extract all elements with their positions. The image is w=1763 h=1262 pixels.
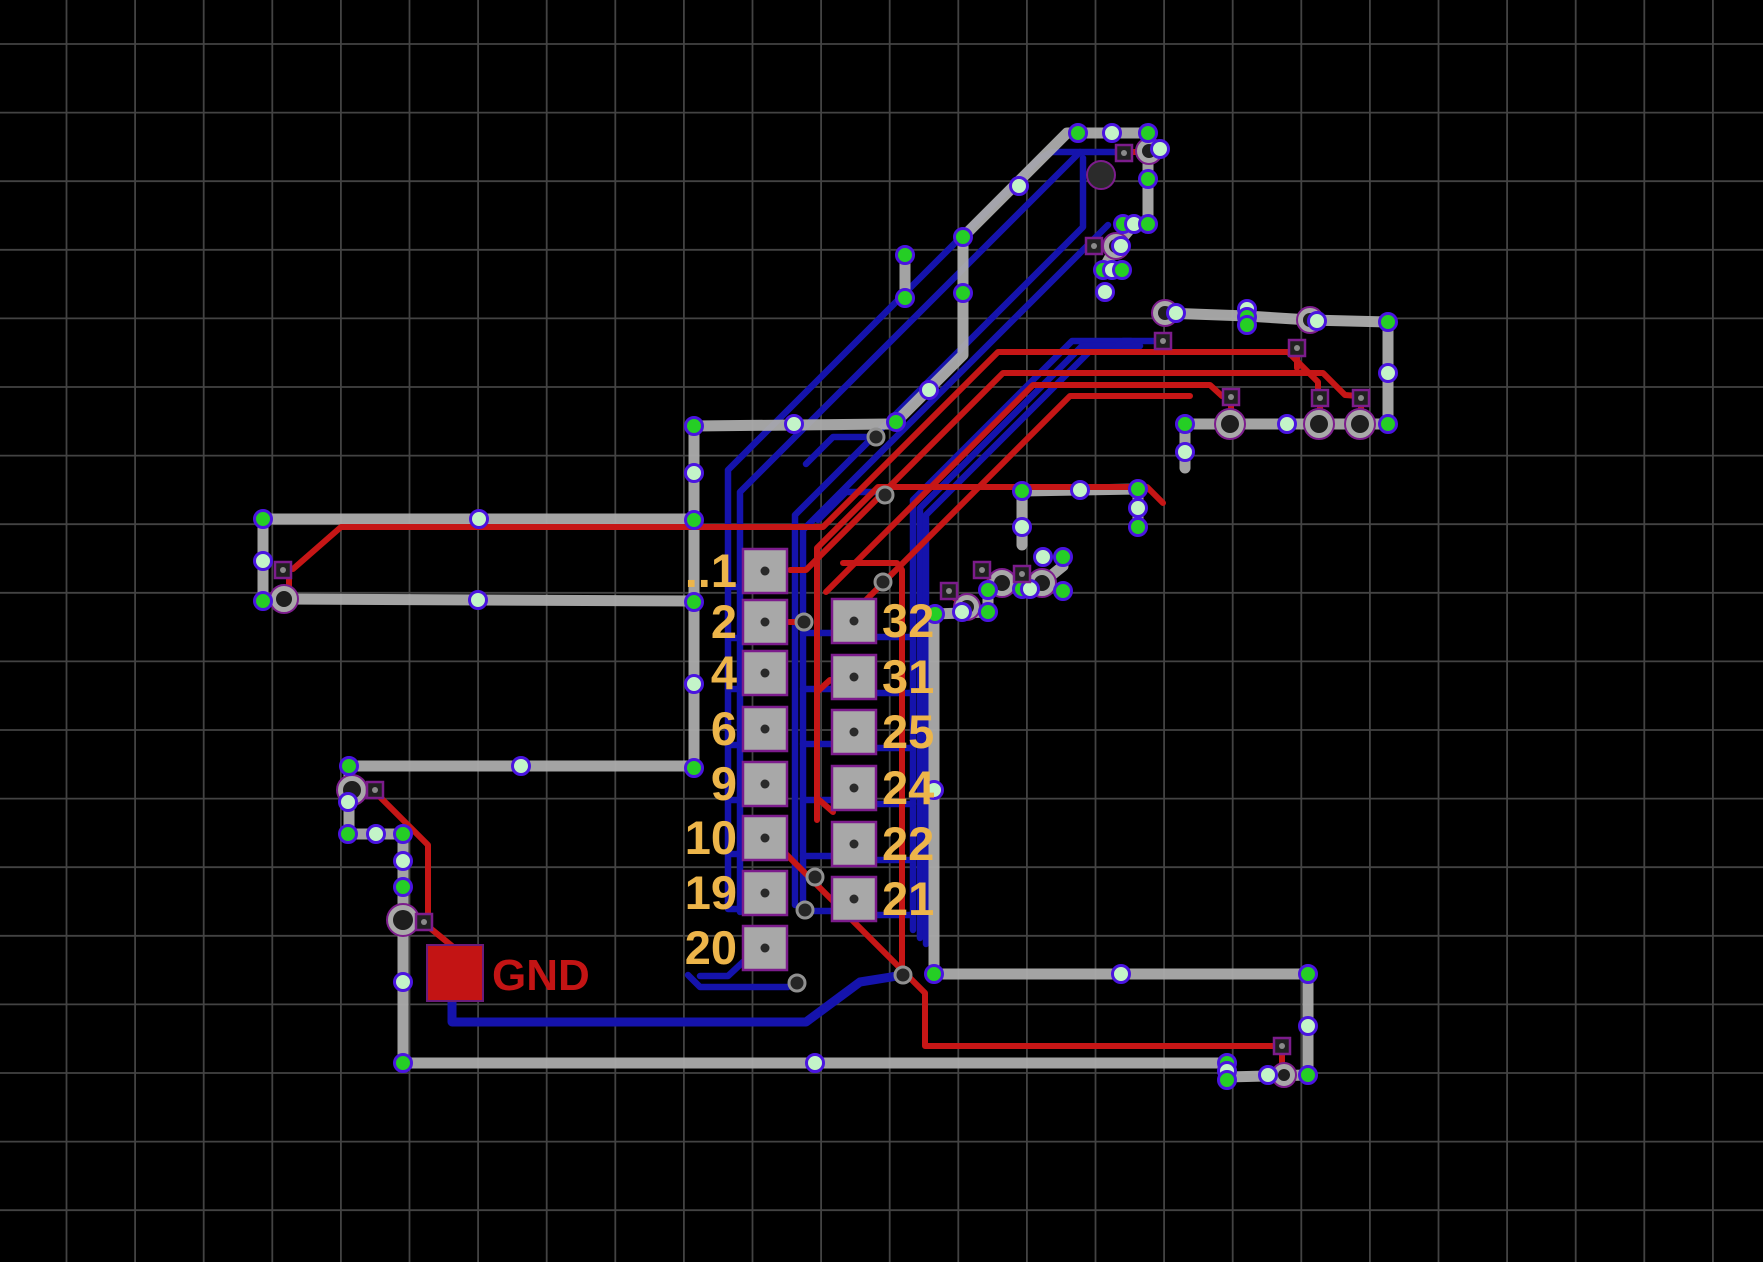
via-green[interactable] — [1140, 216, 1157, 233]
via-green[interactable] — [1219, 1072, 1236, 1089]
plated-hole-center — [1221, 415, 1239, 433]
small-pad-dot — [1358, 395, 1364, 401]
pin-label-6: 6 — [711, 702, 737, 755]
pin-label-10: 10 — [685, 811, 737, 864]
via-pale-green[interactable] — [1011, 178, 1028, 195]
via-pale-green[interactable] — [471, 511, 488, 528]
pad-center-dot — [850, 895, 859, 904]
pad-center-dot — [761, 889, 770, 898]
via-green[interactable] — [1130, 481, 1147, 498]
via-green[interactable] — [686, 512, 703, 529]
small-pad-dot — [946, 588, 952, 594]
via-green[interactable] — [897, 290, 914, 307]
terminal-dot[interactable] — [868, 429, 884, 445]
pad-center-dot — [850, 728, 859, 737]
via-green[interactable] — [926, 966, 943, 983]
via-pale-green[interactable] — [255, 553, 272, 570]
via-pale-green[interactable] — [1300, 1018, 1317, 1035]
via-green[interactable] — [980, 582, 997, 599]
pad-center-dot — [850, 840, 859, 849]
pin-label-32: 32 — [882, 594, 934, 647]
via-green[interactable] — [1380, 416, 1397, 433]
small-pad-dot — [1121, 150, 1127, 156]
pad-center-dot — [850, 784, 859, 793]
via-green[interactable] — [1300, 966, 1317, 983]
small-pad-dot — [1091, 243, 1097, 249]
via-pale-green[interactable] — [1380, 365, 1397, 382]
pin-label-22: 22 — [882, 817, 934, 870]
via-pale-green[interactable] — [1072, 482, 1089, 499]
pin-label-4: 4 — [711, 646, 737, 699]
via-green[interactable] — [980, 604, 997, 621]
pcb-canvas[interactable]: ..12469101920323125242221GND — [0, 0, 1763, 1262]
via-pale-green[interactable] — [1260, 1067, 1277, 1084]
via-pale-green[interactable] — [1168, 305, 1185, 322]
via-pale-green[interactable] — [513, 758, 530, 775]
via-pale-green[interactable] — [368, 826, 385, 843]
pad-center-dot — [761, 725, 770, 734]
via-pale-green[interactable] — [340, 794, 357, 811]
pad-center-dot — [761, 618, 770, 627]
via-pale-green[interactable] — [1279, 416, 1296, 433]
terminal-dot[interactable] — [789, 975, 805, 991]
trace-bottom-layer-6[interactable] — [926, 341, 1131, 944]
plated-hole-center — [1310, 415, 1328, 433]
small-pad-dot — [1317, 395, 1323, 401]
via-green[interactable] — [1380, 314, 1397, 331]
plated-hole-center — [1351, 415, 1369, 433]
via-pale-green[interactable] — [395, 853, 412, 870]
terminal-dot[interactable] — [807, 869, 823, 885]
via-green[interactable] — [255, 593, 272, 610]
via-pale-green[interactable] — [1309, 313, 1326, 330]
trace-unrouted-gray-11[interactable] — [1165, 313, 1388, 322]
terminal-dot[interactable] — [796, 614, 812, 630]
via-pale-green[interactable] — [807, 1055, 824, 1072]
via-pale-green[interactable] — [1152, 141, 1169, 158]
gnd-pad[interactable] — [427, 945, 483, 1001]
pin-label-24: 24 — [882, 761, 934, 814]
trace-top-layer-9[interactable] — [770, 838, 1276, 1046]
via-green[interactable] — [340, 826, 357, 843]
via-green[interactable] — [955, 229, 972, 246]
via-green[interactable] — [395, 826, 412, 843]
via-green[interactable] — [1130, 519, 1147, 536]
pin-label-25: 25 — [882, 705, 934, 758]
via-green[interactable] — [1014, 483, 1031, 500]
plated-hole-center — [1278, 1069, 1290, 1081]
pad-center-dot — [850, 617, 859, 626]
via-pale-green[interactable] — [1104, 125, 1121, 142]
via-green[interactable] — [1055, 549, 1072, 566]
via-green[interactable] — [1140, 125, 1157, 142]
terminal-dot[interactable] — [797, 902, 813, 918]
via-pale-green[interactable] — [786, 416, 803, 433]
pad-center-dot — [850, 673, 859, 682]
small-pad-dot — [1019, 571, 1025, 577]
via-pale-green[interactable] — [686, 676, 703, 693]
small-pad-dot — [1160, 338, 1166, 344]
terminal-dot[interactable] — [895, 967, 911, 983]
via-pale-green[interactable] — [395, 974, 412, 991]
via-green[interactable] — [1114, 262, 1131, 279]
gnd-label: GND — [492, 951, 590, 1000]
pad-center-dot — [761, 669, 770, 678]
small-pad-dot — [979, 567, 985, 573]
pad-center-dot — [761, 944, 770, 953]
via-pale-green[interactable] — [686, 465, 703, 482]
via-green[interactable] — [888, 414, 905, 431]
pin-label-19: 19 — [685, 866, 737, 919]
via-pale-green[interactable] — [1014, 519, 1031, 536]
via-pale-green[interactable] — [1035, 549, 1052, 566]
pin-label-1: ..1 — [685, 544, 737, 597]
via-pale-green[interactable] — [1113, 966, 1130, 983]
pcb-viewport: ..12469101920323125242221GND — [0, 0, 1763, 1262]
small-pad-dot — [1279, 1043, 1285, 1049]
via-green[interactable] — [686, 418, 703, 435]
via-green[interactable] — [1055, 583, 1072, 600]
via-green[interactable] — [1177, 416, 1194, 433]
via-pale-green[interactable] — [1130, 500, 1147, 517]
trace-unrouted-gray-2[interactable] — [284, 599, 694, 601]
pin-label-21: 21 — [882, 872, 934, 925]
plated-hole-center — [393, 910, 413, 930]
via-pale-green[interactable] — [470, 592, 487, 609]
via-green[interactable] — [395, 1055, 412, 1072]
via-green[interactable] — [341, 758, 358, 775]
terminal-dot[interactable] — [875, 574, 891, 590]
pin-label-20: 20 — [685, 921, 737, 974]
drill-hole[interactable] — [1087, 161, 1115, 189]
small-pad-dot — [421, 919, 427, 925]
pad-center-dot — [761, 834, 770, 843]
via-pale-green[interactable] — [954, 604, 971, 621]
pin-label-31: 31 — [882, 650, 934, 703]
pad-center-dot — [761, 780, 770, 789]
plated-hole-center — [276, 591, 292, 607]
via-green[interactable] — [395, 879, 412, 896]
via-green[interactable] — [897, 247, 914, 264]
small-pad-dot — [1294, 345, 1300, 351]
via-pale-green[interactable] — [921, 382, 938, 399]
via-green[interactable] — [1239, 317, 1256, 334]
small-pad-dot — [1228, 394, 1234, 400]
pin-label-2: 2 — [711, 595, 737, 648]
trace-top-layer-15[interactable] — [430, 928, 452, 946]
small-pad-dot — [372, 787, 378, 793]
via-green[interactable] — [1070, 125, 1087, 142]
via-pale-green[interactable] — [1113, 238, 1130, 255]
via-green[interactable] — [1300, 1067, 1317, 1084]
terminal-dot[interactable] — [877, 487, 893, 503]
via-green[interactable] — [686, 760, 703, 777]
via-green[interactable] — [255, 511, 272, 528]
pad-center-dot — [761, 567, 770, 576]
via-green[interactable] — [955, 285, 972, 302]
small-pad-dot — [280, 567, 286, 573]
pin-label-9: 9 — [711, 757, 737, 810]
via-green[interactable] — [1140, 171, 1157, 188]
via-pale-green[interactable] — [1097, 284, 1114, 301]
via-pale-green[interactable] — [1177, 444, 1194, 461]
